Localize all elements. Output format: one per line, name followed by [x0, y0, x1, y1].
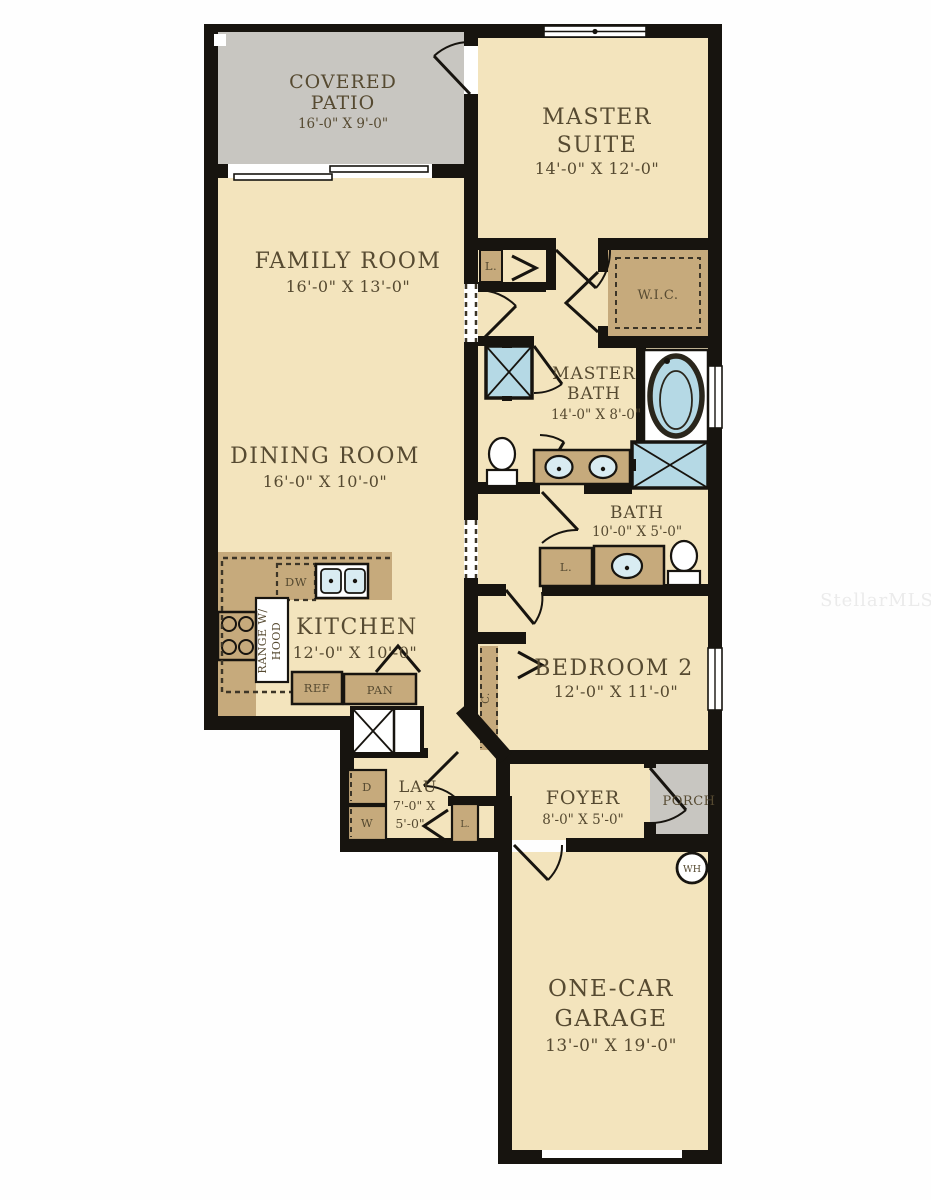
sink-drain — [329, 579, 333, 583]
laundry-dims2: 5'-0" — [395, 816, 424, 831]
window-dot — [592, 29, 597, 34]
porch-label: PORCH — [663, 794, 716, 809]
wall-segment — [498, 838, 512, 1164]
washer-label: W — [361, 816, 373, 830]
master-suite-label: MASTER — [542, 105, 652, 130]
toilet — [489, 438, 515, 470]
dryer-label: D — [362, 780, 372, 794]
wall-segment — [204, 716, 356, 730]
master-bath-dims: 14'-0" X 8'-0" — [551, 407, 641, 423]
wall-segment — [708, 24, 722, 850]
garage-door-gap — [542, 1150, 682, 1158]
dining-room-dims: 16'-0" X 10'-0" — [263, 472, 387, 491]
sink-drain — [557, 467, 561, 471]
dining-room-label: DINING ROOM — [230, 444, 420, 469]
master-suite-dims: 14'-0" X 12'-0" — [535, 159, 659, 178]
sink-drain — [601, 467, 605, 471]
tub-faucet — [664, 358, 670, 364]
foyer-label: FOYER — [546, 787, 620, 809]
laundry-label: LAU — [399, 777, 438, 796]
refrigerator-label: REF — [304, 681, 331, 695]
laundry-linen-label: L. — [460, 819, 469, 830]
wall-segment — [204, 24, 478, 32]
wic-label: W.I.C. — [637, 288, 678, 303]
bedroom2-dims: 12'-0" X 11'-0" — [554, 682, 678, 701]
wall-segment — [598, 238, 722, 250]
wall-segment — [708, 838, 722, 1164]
wall-segment — [478, 632, 526, 644]
range-label1: RANGE W/ — [256, 608, 269, 673]
floor-plan-drawing: COVERED PATIO 16'-0" X 9'-0" MASTER SUIT… — [0, 0, 931, 1200]
master-bath-label2: BATH — [567, 384, 621, 404]
garage-label: ONE-CAR — [548, 976, 674, 1002]
bath-label: BATH — [610, 503, 664, 523]
kitchen-label: KITCHEN — [296, 615, 418, 640]
master-suite-label2: SUITE — [557, 133, 638, 158]
wall-segment — [546, 238, 556, 290]
hall-linen-label: L. — [485, 259, 497, 273]
sink-drain — [625, 566, 629, 570]
tub-shower-faucet — [630, 459, 636, 471]
wall-segment — [504, 750, 722, 764]
bath-linen-label: L. — [560, 560, 572, 574]
toilet-tank — [668, 571, 700, 585]
sliding-door-panel — [234, 174, 332, 180]
foyer-dims: 8'-0" X 5'-0" — [542, 812, 624, 828]
pantry-label: PAN — [367, 683, 394, 697]
door-opening — [464, 46, 478, 94]
covered-patio-label: COVERED — [289, 71, 397, 93]
toilet — [671, 541, 697, 571]
wall-segment — [566, 838, 708, 852]
wall-segment — [204, 24, 218, 172]
wall-segment — [478, 584, 506, 596]
closet-label: C. — [481, 692, 492, 703]
wall-segment — [464, 164, 478, 718]
water-heater-label: WH — [683, 864, 701, 875]
wall-segment — [598, 336, 722, 348]
garage-door — [542, 1158, 682, 1163]
garage-label2: GARAGE — [554, 1006, 667, 1032]
wall-segment — [478, 238, 546, 250]
bedroom2-label: BEDROOM 2 — [534, 656, 694, 681]
tub — [650, 356, 702, 436]
watermark: StellarMLS — [820, 590, 931, 611]
covered-patio-dims: 16'-0" X 9'-0" — [298, 116, 388, 132]
wall-notch — [214, 34, 226, 46]
wall-segment — [204, 164, 218, 730]
shower-head — [502, 343, 512, 348]
range-label2: HOOD — [270, 622, 283, 660]
wall-segment — [494, 796, 512, 852]
sink-drain — [353, 579, 357, 583]
floor-plan-image: COVERED PATIO 16'-0" X 9'-0" MASTER SUIT… — [0, 0, 931, 1200]
garage-dims: 13'-0" X 19'-0" — [545, 1036, 677, 1056]
kitchen-dims: 12'-0" X 10'-0" — [293, 643, 417, 662]
sliding-door-panel — [330, 166, 428, 172]
shower-drain — [502, 396, 512, 401]
covered-patio-label2: PATIO — [311, 92, 375, 114]
laundry-dims1: 7'-0" X — [393, 798, 435, 813]
wall-segment — [644, 752, 656, 768]
dishwasher-label: DW — [285, 575, 307, 589]
family-room-dims: 16'-0" X 13'-0" — [286, 277, 410, 296]
family-room-label: FAMILY ROOM — [255, 249, 442, 274]
bath-dims: 10'-0" X 5'-0" — [592, 524, 682, 540]
toilet-tank — [487, 470, 517, 486]
master-bath-label: MASTER — [552, 364, 636, 384]
